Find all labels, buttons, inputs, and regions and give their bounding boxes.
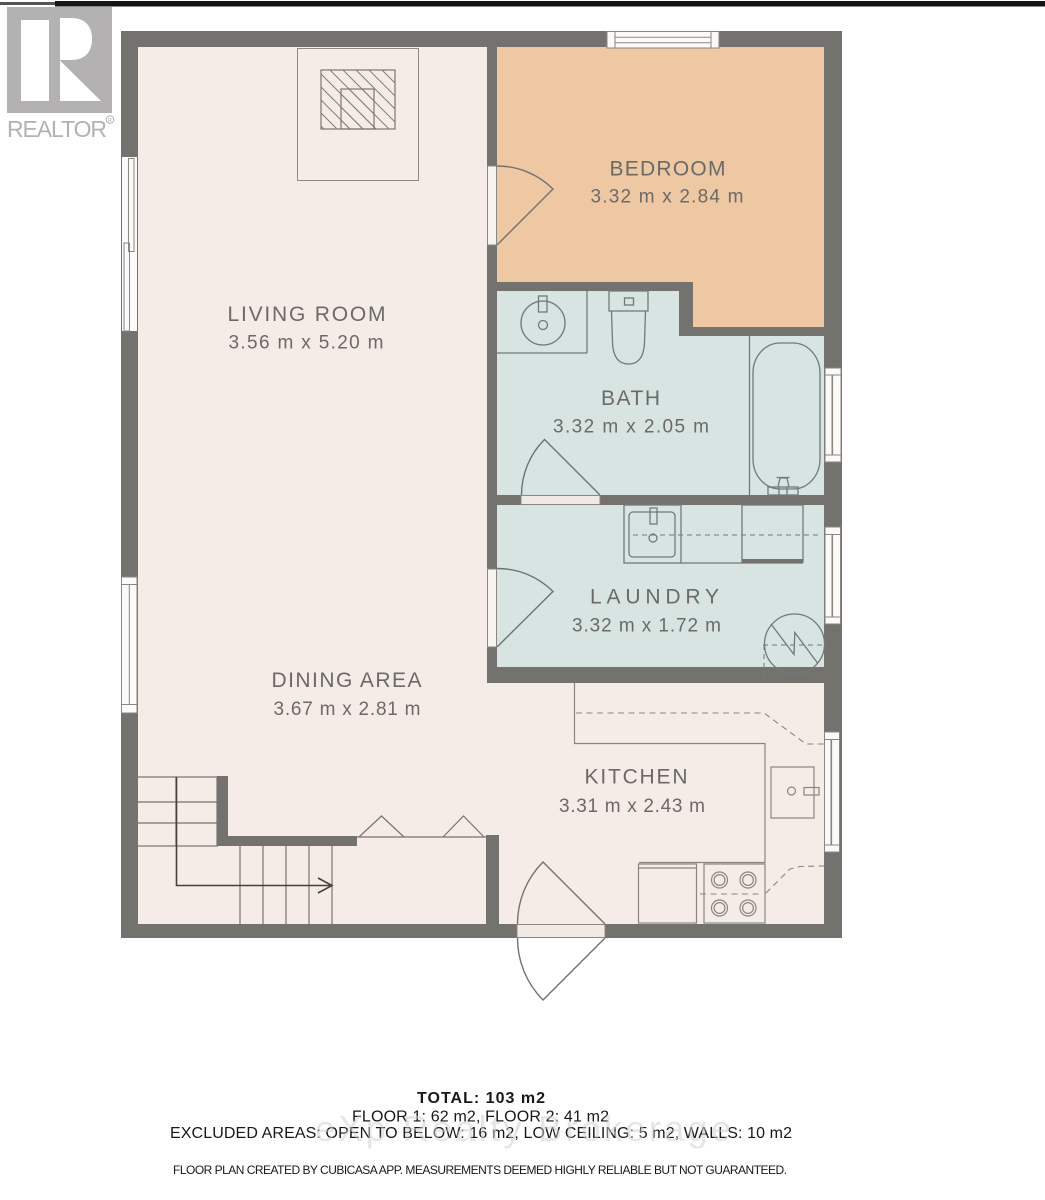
- svg-text:LIVING ROOM: LIVING ROOM: [228, 303, 386, 326]
- svg-text:R: R: [108, 118, 112, 124]
- svg-text:KITCHEN: KITCHEN: [585, 766, 688, 789]
- svg-text:3.56 m x 5.20 m: 3.56 m x 5.20 m: [229, 333, 384, 354]
- svg-text:3.32 m x 1.72 m: 3.32 m x 1.72 m: [572, 616, 721, 637]
- svg-text:3.32 m x 2.84 m: 3.32 m x 2.84 m: [591, 187, 744, 208]
- svg-text:REALTOR: REALTOR: [7, 116, 107, 142]
- svg-text:3.31 m x 2.43 m: 3.31 m x 2.43 m: [559, 796, 705, 817]
- svg-text:BATH: BATH: [601, 387, 660, 410]
- svg-text:3.32 m x 2.05 m: 3.32 m x 2.05 m: [553, 417, 709, 438]
- svg-text:FLOOR PLAN CREATED BY CUBICASA: FLOOR PLAN CREATED BY CUBICASA APP. MEAS…: [173, 1163, 787, 1177]
- svg-text:TOTAL: 103 m2: TOTAL: 103 m2: [417, 1090, 545, 1107]
- svg-text:3.67 m x 2.81 m: 3.67 m x 2.81 m: [274, 699, 421, 720]
- svg-text:LAUNDRY: LAUNDRY: [590, 586, 719, 609]
- svg-text:BEDROOM: BEDROOM: [610, 158, 726, 181]
